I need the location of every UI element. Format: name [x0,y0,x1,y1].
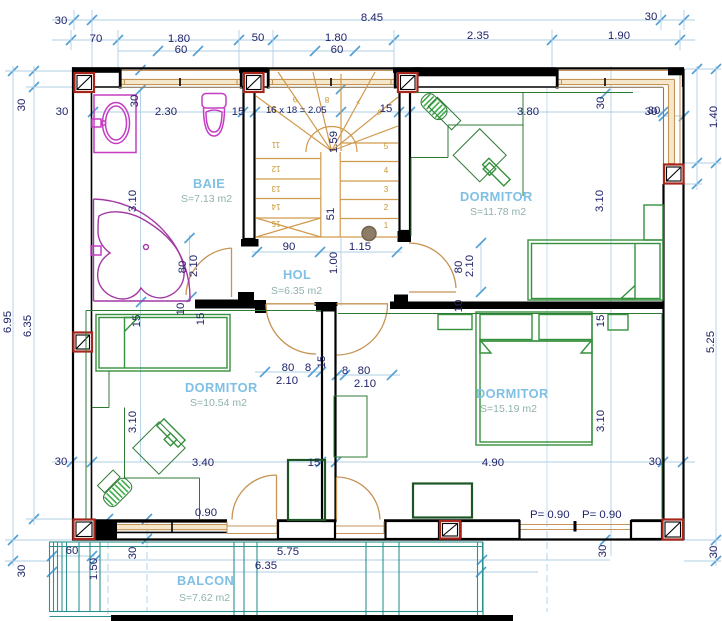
svg-text:HOL: HOL [283,267,311,282]
svg-text:0.90: 0.90 [195,507,217,519]
svg-text:2.10: 2.10 [354,378,376,390]
svg-text:DORMITOR: DORMITOR [460,189,533,204]
svg-text:S=15.19 m2: S=15.19 m2 [480,403,537,415]
svg-text:2.35: 2.35 [467,30,489,42]
svg-text:8: 8 [324,95,329,104]
svg-text:4.90: 4.90 [482,457,504,469]
svg-text:30: 30 [127,547,139,560]
svg-text:3: 3 [384,185,389,194]
svg-text:15: 15 [316,356,328,369]
svg-text:S=6.35 m2: S=6.35 m2 [271,285,322,297]
svg-text:30: 30 [649,456,662,468]
svg-text:3.80: 3.80 [517,106,539,118]
svg-text:2.10: 2.10 [276,375,298,387]
svg-text:80: 80 [358,365,371,377]
svg-text:1.15: 1.15 [349,241,371,253]
svg-text:14: 14 [271,202,280,211]
svg-text:70: 70 [90,33,103,45]
svg-text:10: 10 [453,300,465,313]
svg-text:3.10: 3.10 [594,190,606,212]
svg-text:30: 30 [645,11,658,23]
svg-text:S=11.78 m2: S=11.78 m2 [470,206,526,218]
svg-text:30: 30 [55,15,68,27]
svg-text:5.75: 5.75 [277,546,299,558]
svg-text:15: 15 [232,106,245,118]
svg-text:S=7.13 m2: S=7.13 m2 [181,193,232,205]
svg-text:6.95: 6.95 [2,311,14,333]
svg-text:S=10.54 m2: S=10.54 m2 [190,397,247,409]
svg-text:30: 30 [16,565,28,578]
svg-text:10: 10 [175,303,187,316]
svg-text:2.10: 2.10 [464,255,476,277]
svg-text:8: 8 [342,365,348,377]
svg-text:30: 30 [597,545,609,558]
svg-text:15: 15 [271,219,280,228]
svg-text:BAIE: BAIE [193,176,225,191]
svg-text:3.10: 3.10 [127,411,139,433]
svg-text:3.10: 3.10 [595,410,607,432]
svg-text:3.40: 3.40 [192,457,214,469]
svg-text:DORMITOR: DORMITOR [185,380,258,395]
svg-text:30: 30 [595,97,607,110]
svg-text:BALCON: BALCON [177,573,234,588]
svg-text:6.35: 6.35 [22,315,34,337]
svg-text:1.90: 1.90 [608,30,630,42]
svg-text:8.45: 8.45 [361,12,383,24]
svg-text:60: 60 [331,44,344,56]
svg-text:13: 13 [271,184,280,193]
svg-text:12: 12 [271,164,280,173]
svg-text:30: 30 [16,99,28,112]
svg-text:51: 51 [325,208,337,221]
svg-text:15: 15 [195,313,207,326]
svg-text:8: 8 [305,362,311,374]
svg-text:1.80: 1.80 [325,32,347,44]
svg-text:S=7.62 m2: S=7.62 m2 [179,592,230,604]
svg-text:30: 30 [56,106,69,118]
svg-text:90: 90 [283,241,296,253]
svg-text:2.30: 2.30 [155,106,177,118]
svg-text:30: 30 [129,95,141,108]
svg-text:50: 50 [252,32,265,44]
svg-text:1.59: 1.59 [328,131,340,153]
svg-text:11: 11 [271,140,280,149]
svg-text:30: 30 [708,546,720,559]
svg-text:DORMITOR: DORMITOR [476,386,549,401]
svg-text:5: 5 [384,142,389,151]
svg-text:1.50: 1.50 [88,558,100,580]
svg-text:1: 1 [384,221,389,230]
svg-text:1.40: 1.40 [708,106,720,128]
svg-text:80: 80 [282,362,295,374]
svg-text:60: 60 [66,545,79,557]
svg-text:60: 60 [175,44,188,56]
svg-text:15: 15 [380,103,393,115]
svg-text:15: 15 [131,315,143,328]
svg-text:15: 15 [595,315,607,328]
svg-text:15: 15 [308,457,321,469]
svg-text:2.10: 2.10 [188,255,200,277]
svg-text:P= 0.90: P= 0.90 [582,509,622,521]
svg-text:1.00: 1.00 [328,252,340,274]
svg-text:2: 2 [384,203,389,212]
svg-text:P= 0.90: P= 0.90 [530,509,570,521]
svg-text:30: 30 [645,106,658,118]
svg-text:4: 4 [384,166,389,175]
svg-text:16 x 18 = 2.05: 16 x 18 = 2.05 [266,105,326,116]
svg-text:30: 30 [55,456,68,468]
svg-text:6.35: 6.35 [255,560,277,572]
svg-text:5.25: 5.25 [705,331,717,353]
svg-text:3.10: 3.10 [127,190,139,212]
